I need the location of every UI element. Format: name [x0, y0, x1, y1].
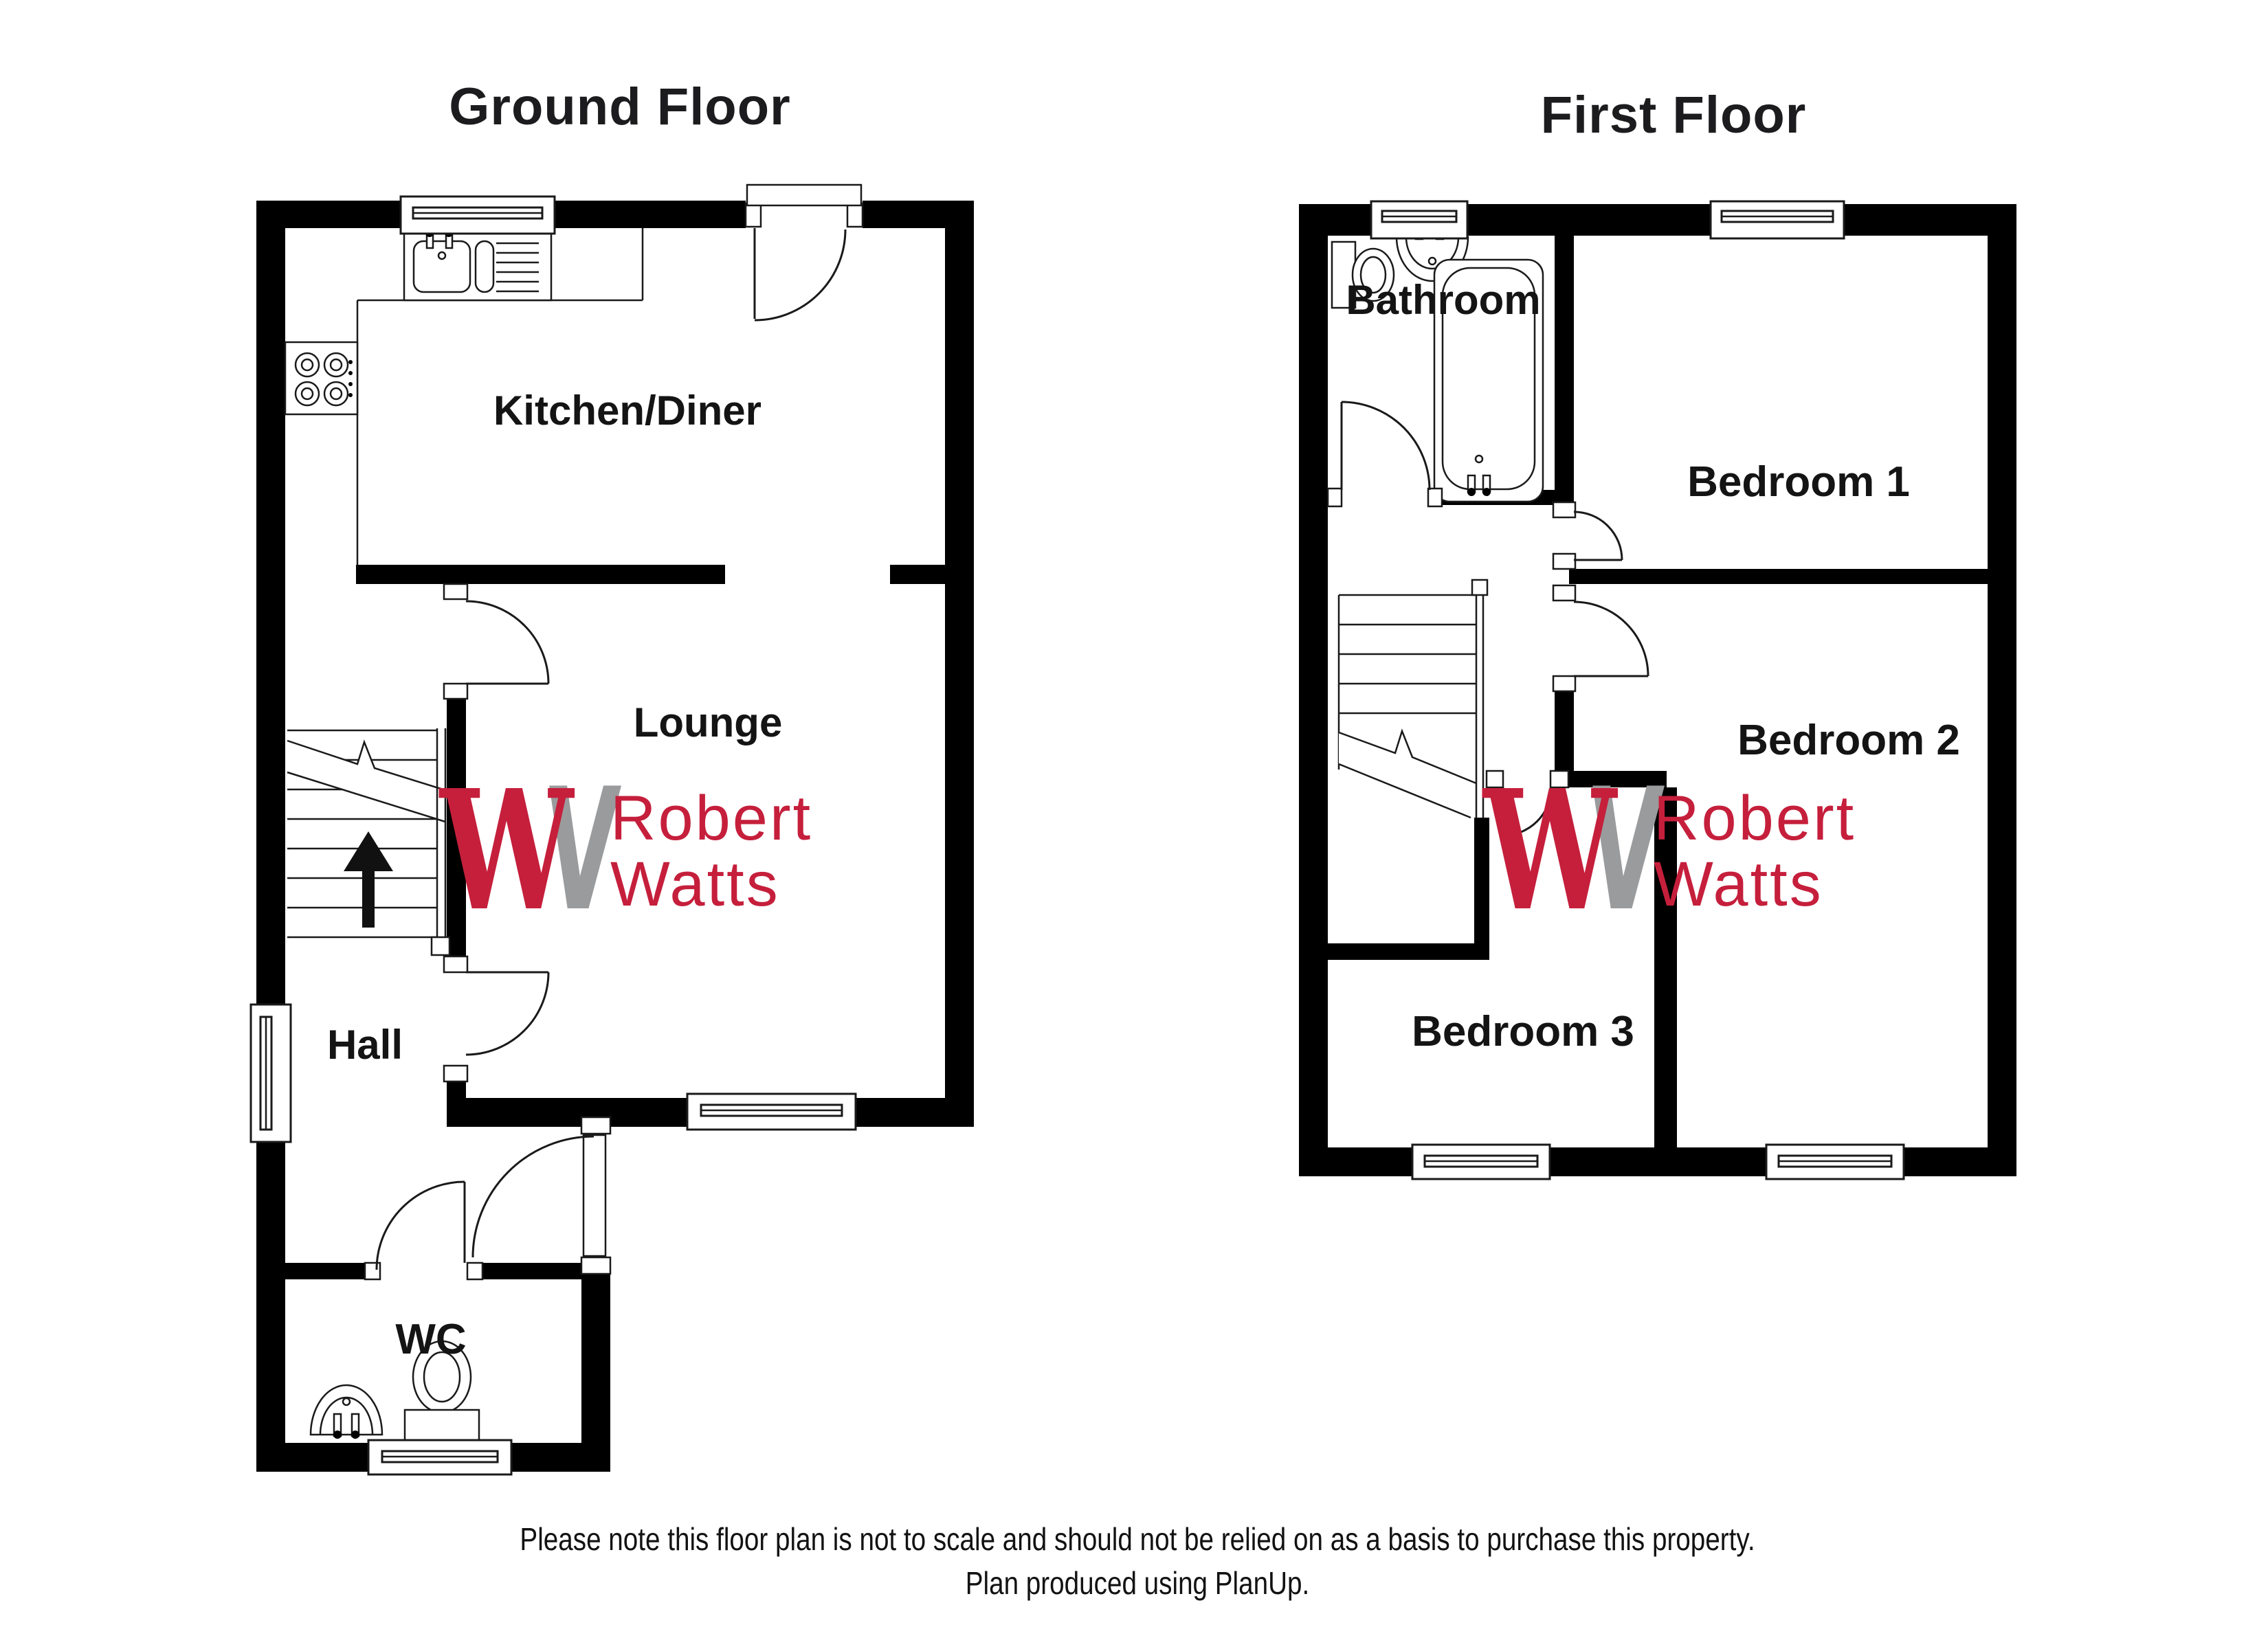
bedroom3-window: [1412, 1145, 1550, 1179]
ground-stairs: [287, 728, 449, 955]
kitchen-sink: [404, 229, 551, 300]
bedroom2-window: [1766, 1145, 1904, 1179]
logo-red-letter: W: [438, 754, 575, 947]
lounge-window: [687, 1094, 856, 1130]
disclaimer: Please note this floor plan is not to sc…: [520, 1517, 1755, 1605]
logo-watermark-first: V W Robert Watts: [1482, 752, 1856, 948]
up-arrow-icon: [344, 831, 393, 928]
bathroom-door: [1328, 402, 1442, 506]
first-stairs: [1339, 580, 1489, 833]
garden-door: [746, 185, 863, 320]
wc-label: WC: [395, 1316, 466, 1363]
wc-window: [368, 1440, 511, 1474]
logo-name-top: Robert: [610, 783, 812, 853]
bedroom1-window: [1711, 201, 1844, 238]
hall-label: Hall: [327, 1022, 403, 1068]
kitchen-window: [401, 197, 555, 234]
bathroom-label: Bathroom: [1346, 277, 1540, 323]
front-door: [473, 1117, 610, 1274]
first-floor-plan: Bathroom Bedroom 1 Bedroom 2 Bedroom 3 V…: [1299, 201, 2016, 1179]
wc-door: [365, 1182, 482, 1279]
ground-floor-title: Ground Floor: [449, 77, 790, 137]
bedroom2-label: Bedroom 2: [1737, 717, 1960, 764]
kitchen-lounge-door: [444, 584, 548, 699]
disclaimer-line1: Please note this floor plan is not to sc…: [520, 1517, 1755, 1561]
bathroom-window: [1371, 201, 1467, 238]
kitchen-label: Kitchen/Diner: [493, 388, 761, 434]
logo-red-letter: W: [1482, 754, 1618, 947]
bedroom3-label: Bedroom 3: [1412, 1008, 1634, 1055]
bedroom2-door: [1553, 585, 1648, 691]
first-walls: [1299, 204, 2016, 1176]
logo-name-bottom: Watts: [610, 849, 780, 919]
bedroom1-label: Bedroom 1: [1687, 458, 1910, 506]
logo-name-top: Robert: [1654, 783, 1856, 853]
hall-lounge-door: [444, 956, 548, 1081]
logo-watermark-ground: V W Robert Watts: [438, 752, 812, 948]
floorplan-drawing: Kitchen/Diner Lounge Hall WC V W Robert …: [0, 0, 2268, 1649]
logo-name-bottom: Watts: [1654, 849, 1823, 919]
hall-window: [251, 1005, 291, 1142]
bedroom1-door: [1553, 502, 1622, 569]
lounge-label: Lounge: [634, 699, 783, 745]
first-floor-title: First Floor: [1541, 85, 1807, 145]
ground-floor-plan: Kitchen/Diner Lounge Hall WC V W Robert …: [251, 185, 974, 1474]
floorplan-page: Ground Floor First Floor: [0, 0, 2268, 1649]
disclaimer-line2: Plan produced using PlanUp.: [520, 1561, 1755, 1605]
basin: [311, 1385, 382, 1439]
hob: [285, 342, 357, 414]
